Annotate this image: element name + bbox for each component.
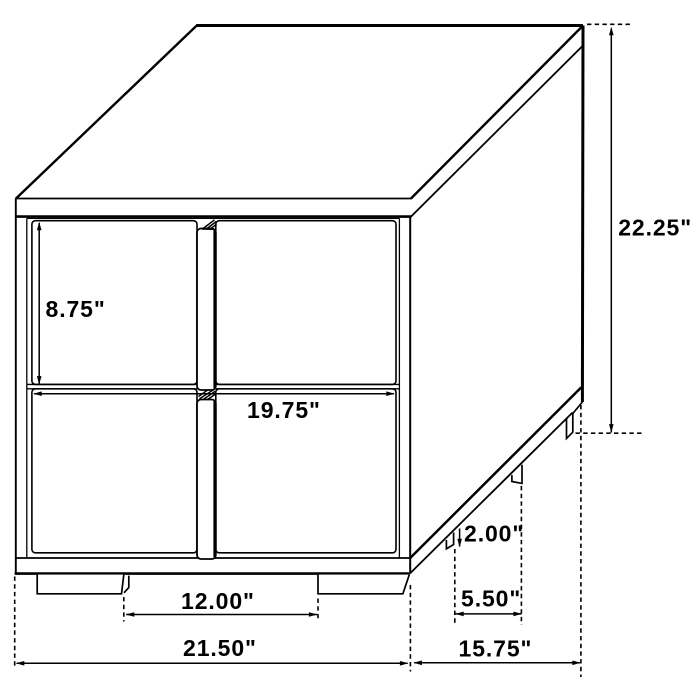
svg-text:8.75": 8.75" [46, 296, 106, 322]
svg-text:15.75": 15.75" [459, 635, 533, 661]
svg-text:22.25": 22.25" [618, 214, 692, 240]
svg-text:2.00": 2.00" [464, 521, 524, 547]
svg-text:21.50": 21.50" [183, 635, 257, 661]
svg-text:12.00": 12.00" [181, 588, 255, 614]
svg-text:19.75": 19.75" [247, 397, 321, 423]
svg-text:5.50": 5.50" [461, 586, 521, 612]
